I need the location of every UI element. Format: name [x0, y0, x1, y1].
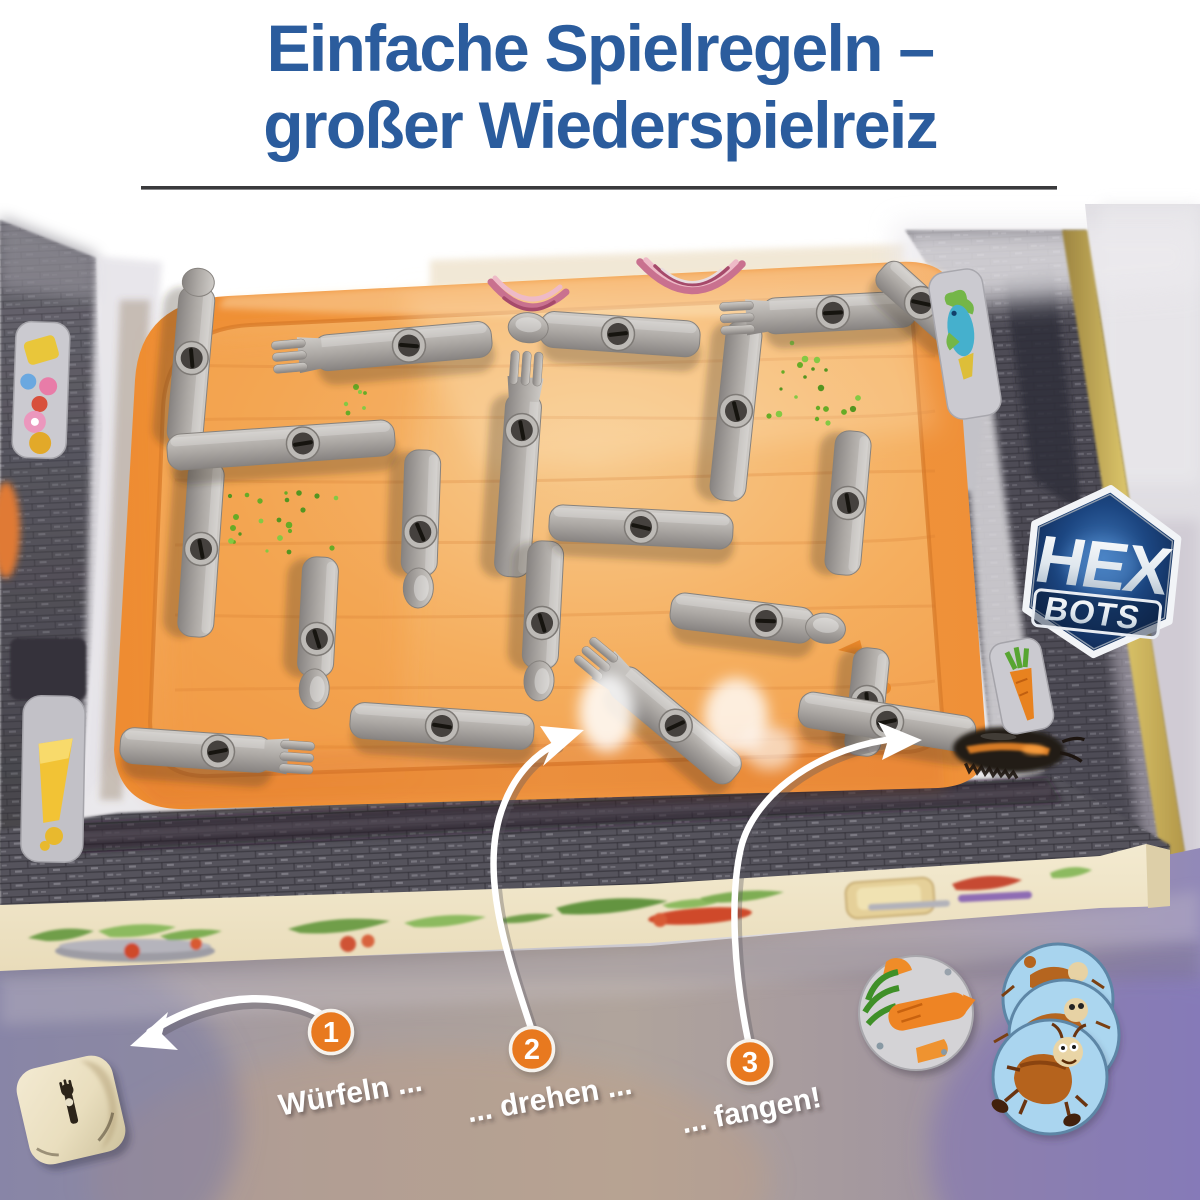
svg-text:2: 2 [524, 1034, 540, 1066]
svg-text:1: 1 [323, 1017, 339, 1049]
svg-text:3: 3 [742, 1047, 758, 1079]
svg-text:großer Wiederspielreiz: großer Wiederspielreiz [263, 88, 937, 162]
svg-text:Einfache Spielregeln –: Einfache Spielregeln – [267, 11, 934, 85]
